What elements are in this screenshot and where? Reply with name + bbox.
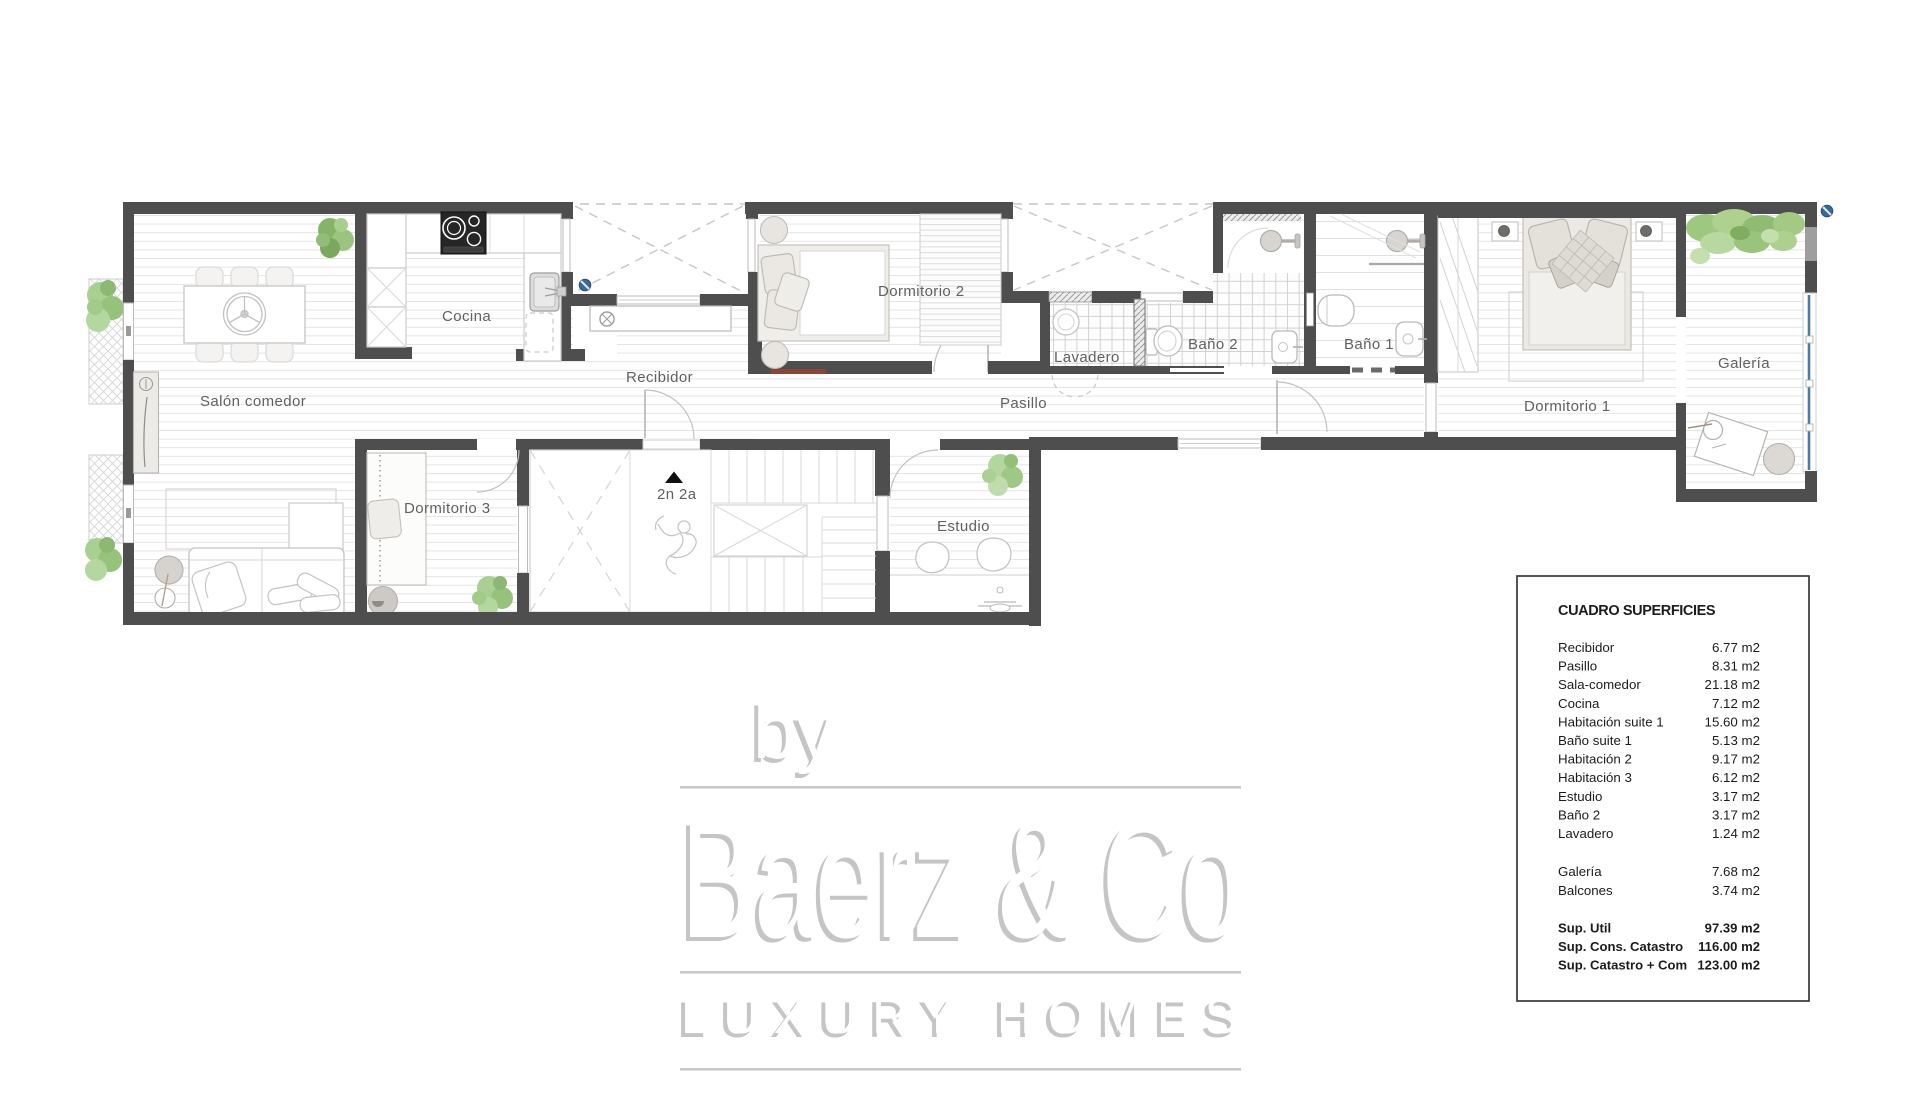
- svg-text:Baño 1: Baño 1: [1344, 336, 1394, 353]
- svg-text:9.17 m2: 9.17 m2: [1712, 752, 1760, 767]
- svg-text:15.60 m2: 15.60 m2: [1705, 714, 1760, 729]
- svg-text:Baño 2: Baño 2: [1558, 807, 1600, 822]
- svg-text:7.12 m2: 7.12 m2: [1712, 696, 1760, 711]
- svg-text:Estudio: Estudio: [1558, 789, 1602, 804]
- svg-text:Habitación suite 1: Habitación suite 1: [1558, 714, 1664, 729]
- svg-text:Cocina: Cocina: [1558, 696, 1600, 711]
- svg-text:Pasillo: Pasillo: [1558, 659, 1597, 674]
- svg-text:Sala-comedor: Sala-comedor: [1558, 677, 1641, 692]
- svg-text:116.00 m2: 116.00 m2: [1698, 939, 1760, 954]
- svg-text:3.17 m2: 3.17 m2: [1712, 789, 1760, 804]
- svg-text:Dormitorio 1: Dormitorio 1: [1524, 398, 1611, 415]
- svg-text:Pasillo: Pasillo: [1000, 395, 1047, 412]
- svg-text:6.12 m2: 6.12 m2: [1712, 770, 1760, 785]
- svg-text:Cocina: Cocina: [442, 308, 491, 325]
- svg-text:8.31 m2: 8.31 m2: [1712, 659, 1760, 674]
- svg-text:Balcones: Balcones: [1558, 883, 1613, 898]
- svg-text:Recibidor: Recibidor: [626, 369, 693, 386]
- svg-text:1.24 m2: 1.24 m2: [1712, 826, 1760, 841]
- svg-text:Galería: Galería: [1558, 864, 1602, 879]
- svg-text:Baño suite 1: Baño suite 1: [1558, 733, 1632, 748]
- svg-text:Baño 2: Baño 2: [1188, 336, 1238, 353]
- svg-text:CUADRO SUPERFICIES: CUADRO SUPERFICIES: [1558, 603, 1716, 619]
- svg-text:21.18 m2: 21.18 m2: [1705, 677, 1760, 692]
- svg-text:7.68 m2: 7.68 m2: [1712, 864, 1760, 879]
- svg-text:Sup. Catastro + Com: Sup. Catastro + Com: [1558, 958, 1687, 973]
- svg-text:5.13 m2: 5.13 m2: [1712, 733, 1760, 748]
- svg-text:2n 2a: 2n 2a: [657, 486, 697, 503]
- svg-text:3.17 m2: 3.17 m2: [1712, 807, 1760, 822]
- svg-text:123.00 m2: 123.00 m2: [1697, 958, 1760, 973]
- svg-text:Lavadero: Lavadero: [1054, 349, 1120, 366]
- svg-text:6.77 m2: 6.77 m2: [1712, 640, 1760, 655]
- svg-text:97.39 m2: 97.39 m2: [1705, 920, 1760, 935]
- svg-text:Lavadero: Lavadero: [1558, 826, 1613, 841]
- svg-text:Galería: Galería: [1718, 355, 1770, 372]
- svg-text:by: by: [753, 687, 835, 775]
- svg-text:Baerz & Co: Baerz & Co: [681, 785, 1242, 973]
- svg-text:Salón comedor: Salón comedor: [200, 393, 306, 410]
- svg-text:Recibidor: Recibidor: [1558, 640, 1615, 655]
- svg-text:Sup. Cons. Catastro: Sup. Cons. Catastro: [1558, 939, 1683, 954]
- svg-text:Dormitorio 3: Dormitorio 3: [404, 500, 491, 517]
- svg-text:Habitación 3: Habitación 3: [1558, 770, 1632, 785]
- svg-text:3.74 m2: 3.74 m2: [1712, 883, 1760, 898]
- svg-text:Dormitorio 2: Dormitorio 2: [878, 283, 965, 300]
- svg-text:Habitación 2: Habitación 2: [1558, 752, 1632, 767]
- svg-text:Sup. Util: Sup. Util: [1558, 920, 1611, 935]
- svg-text:Estudio: Estudio: [937, 518, 990, 535]
